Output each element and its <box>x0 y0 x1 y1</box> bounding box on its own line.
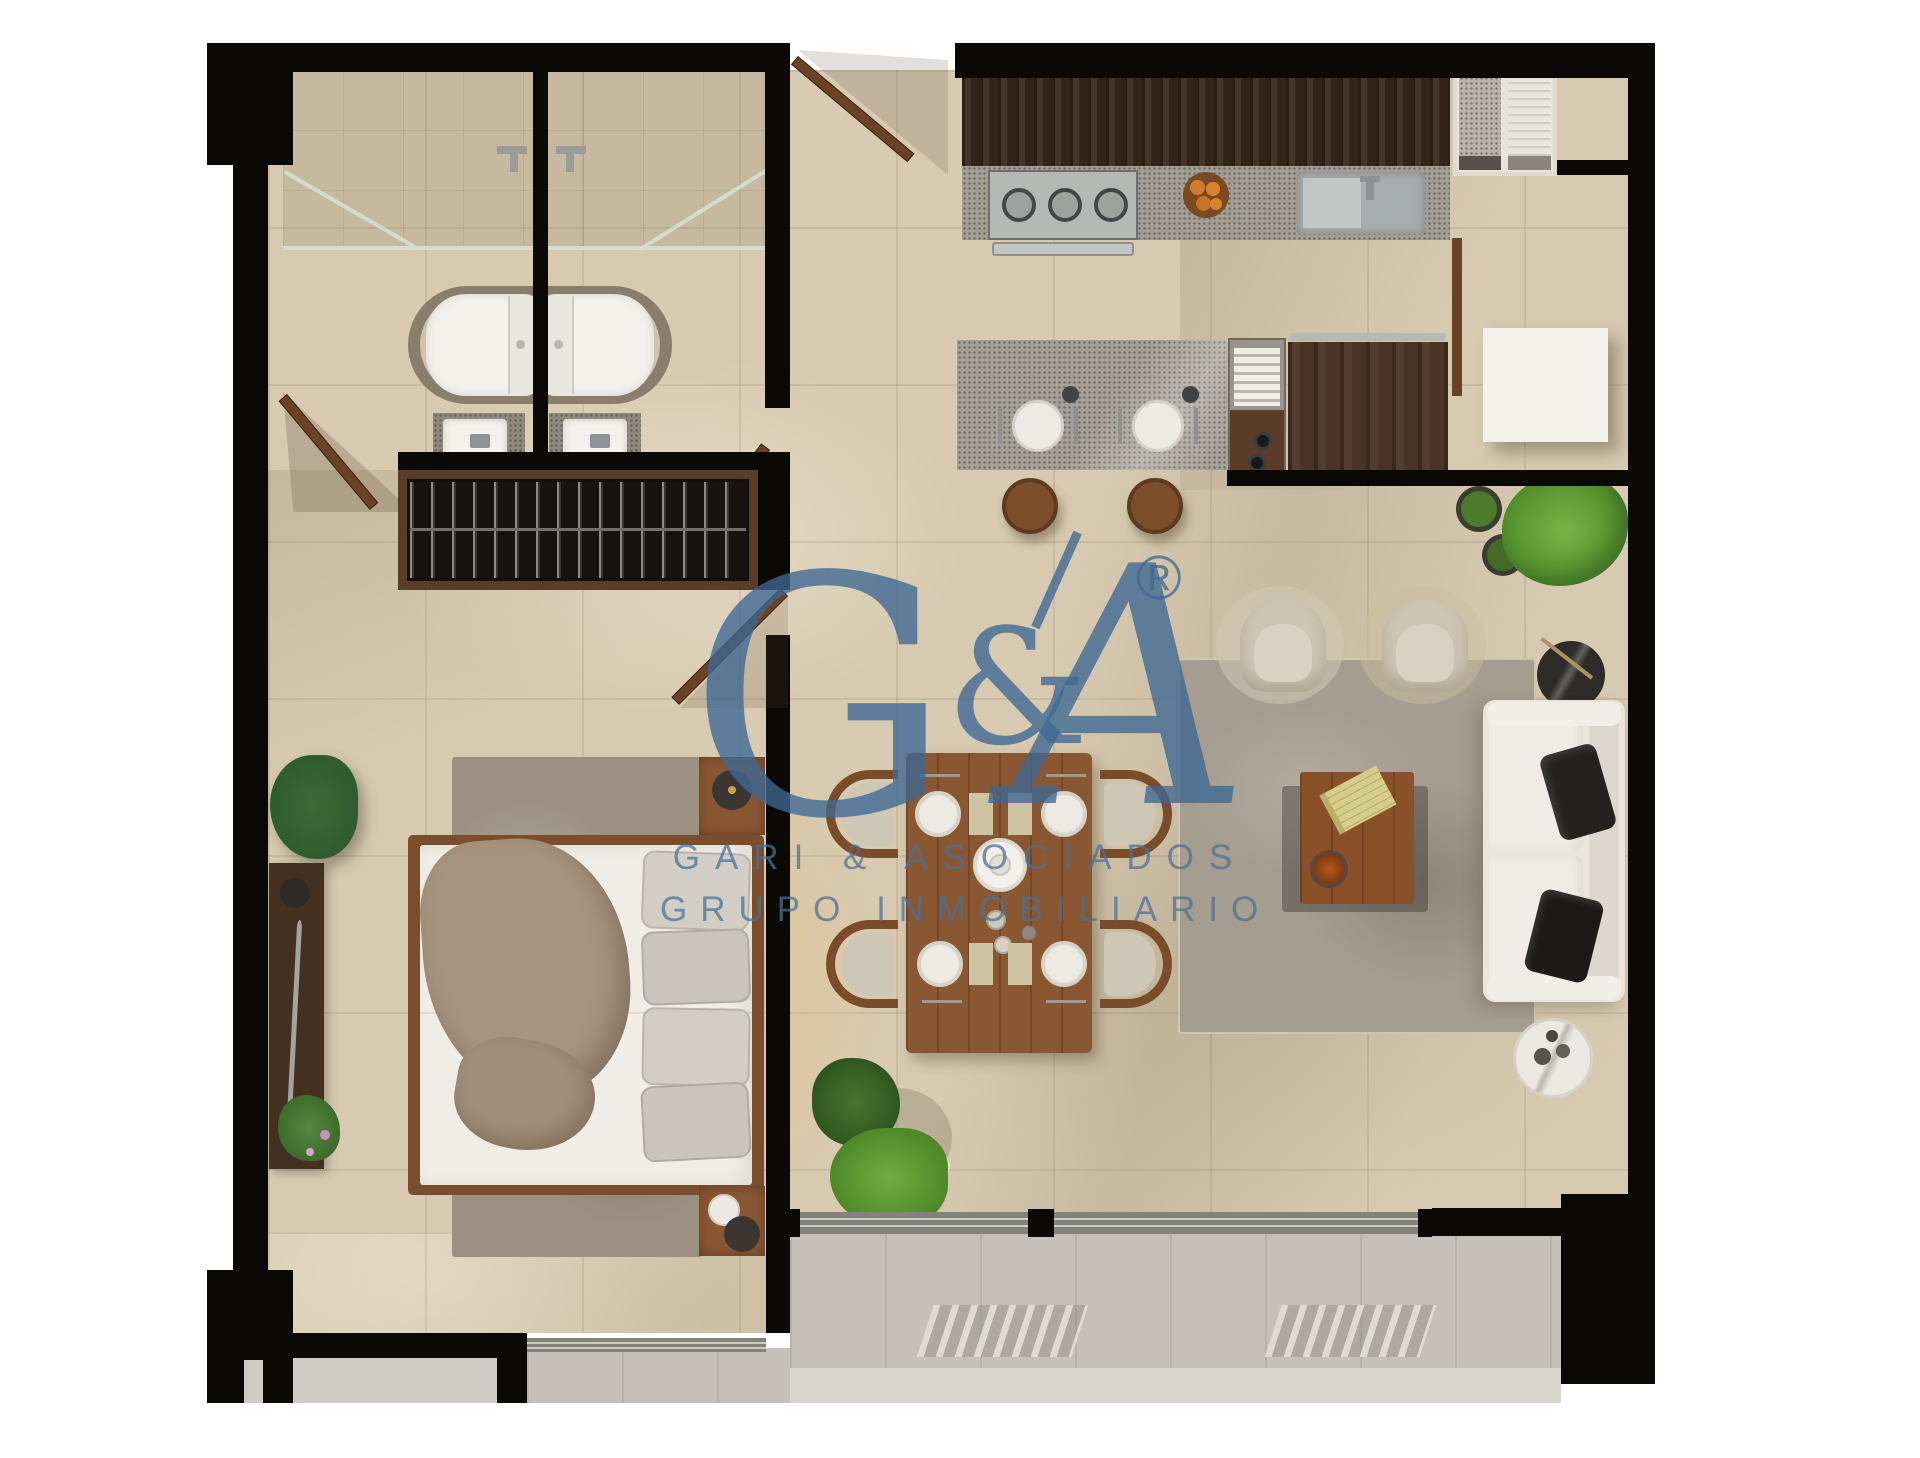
laundry-unit-left-base <box>1459 156 1501 170</box>
coffee-table-bowl <box>1310 850 1348 888</box>
wall-bottom-left-notch <box>244 1360 263 1403</box>
side-cabinet-rail <box>1290 333 1446 341</box>
fruit-bowl <box>1183 172 1229 218</box>
nightstand-bottom-tray <box>724 1216 760 1252</box>
island-cutlery <box>1118 408 1122 444</box>
shower-glass-panel <box>548 246 765 250</box>
shower-valve <box>510 146 518 172</box>
dining-chair-seat <box>842 932 894 996</box>
side-cabinet <box>1288 342 1448 478</box>
bedroom-terrace-ledge <box>268 1358 527 1403</box>
brand-logo-letter-a: A <box>983 524 1268 854</box>
wall-left <box>233 165 268 1270</box>
balcony-deck-light-strip <box>790 1368 1561 1403</box>
bed-pillow <box>640 1081 752 1163</box>
dining-cutlery <box>1046 1000 1086 1003</box>
island-glass <box>1062 386 1079 403</box>
vanity-right-faucet <box>590 434 610 448</box>
marble-table-pebble <box>1546 1030 1558 1042</box>
orange <box>1190 180 1205 195</box>
wall-living-bottom-right <box>1432 1208 1561 1236</box>
plant-foliage <box>1461 491 1497 527</box>
dining-plate <box>1041 941 1087 987</box>
island-plate <box>1132 400 1184 452</box>
closet-wall-band <box>398 452 790 470</box>
toilet-right-button <box>554 340 563 349</box>
orange <box>1206 182 1220 196</box>
shelf-jar <box>1254 432 1272 450</box>
toilet-left-button <box>516 340 525 349</box>
stove-burner <box>1094 188 1128 222</box>
living-balcony-slider <box>790 1212 1432 1234</box>
white-appliance <box>1483 328 1608 442</box>
island-counter <box>957 340 1228 470</box>
shower-glass-panel <box>283 246 533 250</box>
kitchen-faucet-base <box>1360 176 1380 182</box>
bedroom-window-slider <box>527 1338 766 1352</box>
laundry-alcove-wall-step <box>1557 160 1628 175</box>
island-cutlery <box>1074 408 1078 444</box>
armchair-cushion <box>1254 624 1312 682</box>
island-cutlery <box>1194 408 1198 444</box>
lamp-side-table <box>1537 641 1605 709</box>
dining-cutlery <box>922 1000 962 1003</box>
laundry-unit-right-base <box>1508 156 1551 170</box>
wall-bottom-right-block <box>1561 1194 1655 1384</box>
dining-napkin <box>969 943 993 985</box>
balcony-vent-mat <box>1265 1305 1437 1357</box>
orange <box>1196 196 1211 211</box>
wall-bathroom-divider <box>533 70 548 470</box>
sofa-armrest <box>1487 976 1621 1000</box>
stove-burner <box>1002 188 1036 222</box>
balcony-pillar <box>497 1333 527 1403</box>
marble-table-pebble <box>1534 1048 1551 1065</box>
armchair-cushion <box>1396 624 1454 682</box>
vanity-left-faucet <box>470 434 490 448</box>
brand-logo-letter-g: G <box>688 534 952 864</box>
island-cutlery <box>998 408 1002 444</box>
dining-napkin <box>1008 943 1032 985</box>
brand-name-line1: GARI & ASOCIADOS <box>660 838 1260 878</box>
console-speaker <box>280 878 310 908</box>
bed-pillow <box>641 1007 750 1087</box>
stove-burner <box>1048 188 1082 222</box>
balcony-mid-strip <box>527 1348 790 1403</box>
island-glass <box>1182 386 1199 403</box>
laundry-unit-left <box>1459 76 1501 156</box>
wall-top-right <box>955 43 1655 78</box>
island-plate <box>1012 400 1064 452</box>
marble-table-pebble <box>1556 1044 1570 1058</box>
oven-handle <box>992 242 1134 256</box>
wall-bedroom-bottom <box>268 1333 497 1358</box>
tall-wood-panel <box>1452 238 1462 396</box>
kitchen-sink-basin <box>1303 178 1361 228</box>
flower-blossom <box>306 1148 314 1156</box>
registered-trademark-icon: ® <box>1136 548 1182 610</box>
monstera-plant <box>270 755 358 859</box>
wall-right <box>1628 43 1655 1233</box>
wall-bathroom-right <box>765 43 790 408</box>
slider-post <box>1028 1209 1054 1237</box>
laundry-unit-right <box>1508 76 1551 156</box>
floorplan: G & A ® GARI & ASOCIADOS GRUPO INMOBILIA… <box>0 0 1920 1458</box>
flower-blossom <box>320 1130 330 1140</box>
dining-plate <box>917 941 963 987</box>
wall-left-block-top <box>207 43 293 165</box>
kitchen-cabinets <box>962 78 1450 166</box>
brand-name-line2: GRUPO INMOBILIARIO <box>660 890 1260 930</box>
bed-pillow <box>641 928 752 1006</box>
balcony-vent-mat <box>917 1305 1089 1357</box>
slider-post <box>786 1209 800 1237</box>
wall-kitchen-living <box>1227 470 1628 486</box>
orange <box>1210 198 1222 210</box>
stacked-dishes <box>1234 348 1280 406</box>
slider-post <box>1418 1209 1432 1237</box>
wall-top-left <box>207 43 790 72</box>
sofa-armrest <box>1487 702 1621 726</box>
shower-valve <box>566 146 574 172</box>
